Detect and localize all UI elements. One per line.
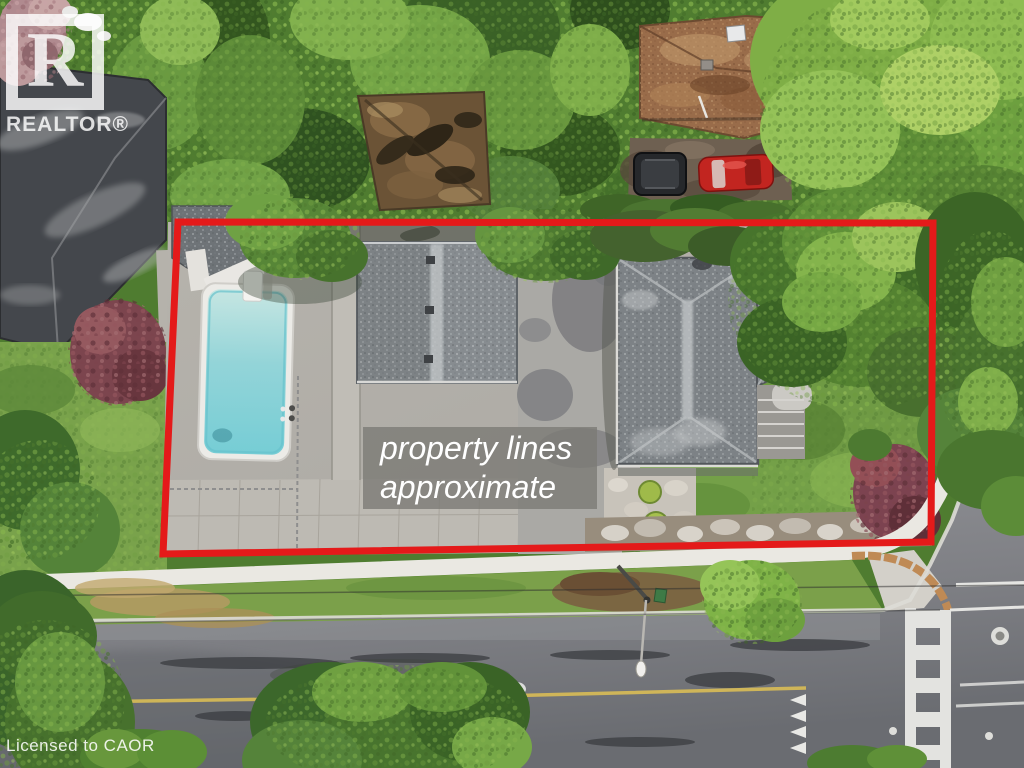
chimney [701, 60, 713, 70]
realtor-brand-text: REALTOR® [6, 113, 129, 137]
skylight [726, 25, 745, 42]
property-lines-label: property lines approximate [363, 427, 597, 509]
streetlight-lamp [636, 661, 646, 677]
suv-black [634, 153, 686, 195]
burgundy-maple [68, 298, 168, 406]
realtor-watermark: R REALTOR® [6, 14, 129, 137]
car-red [698, 154, 774, 192]
realtor-logo-icon: R [6, 14, 104, 110]
realtor-logo-letter: R [27, 25, 83, 95]
property-lines-label-line1: property lines [380, 429, 597, 468]
old-shed-roof [358, 92, 490, 210]
license-text: Licensed to CAOR [6, 736, 155, 756]
property-lines-label-line2: approximate [380, 468, 597, 507]
aerial-photo: R REALTOR® property lines approximate Li… [0, 0, 1024, 768]
aerial-photo-scene [0, 0, 1024, 768]
garbage-bin [654, 588, 667, 602]
